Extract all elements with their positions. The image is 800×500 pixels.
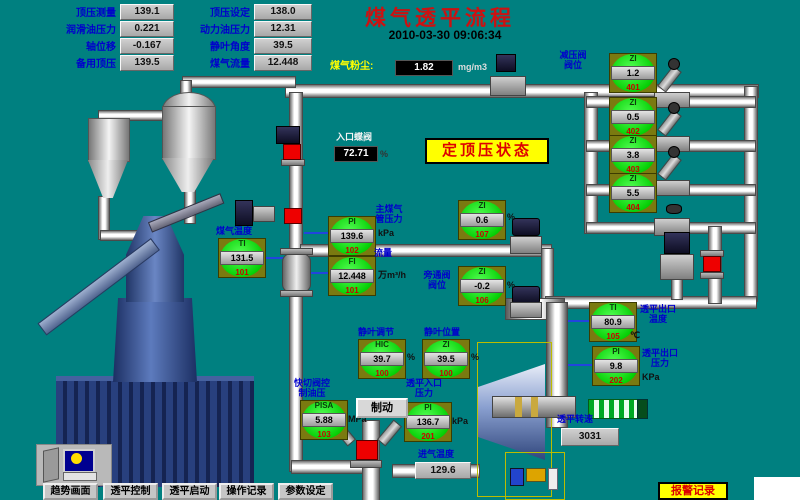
gauge-tag: 202 [593, 376, 639, 385]
nav-button-trend[interactable]: 趋势画面 [43, 483, 98, 500]
gauge-zi-401[interactable]: ZI 1.2 401 [609, 53, 657, 93]
panel-value: 39.5 [254, 38, 312, 54]
flange [280, 248, 313, 255]
gauge-type: TI [219, 239, 265, 248]
valve-body [510, 302, 542, 318]
turbine-inlet-label: 透平入口压力 [404, 378, 444, 398]
panel-label: 顶压设定 [188, 4, 254, 19]
panel-value: 139.5 [120, 55, 174, 71]
gauge-value: 80.9 [591, 315, 635, 329]
cyclone-cone [88, 160, 128, 198]
gauge-zi-403[interactable]: ZI 3.8 403 [609, 135, 657, 175]
valve-actuator [657, 109, 682, 136]
valve-actuator [512, 218, 540, 236]
nav-button-param[interactable]: 参数设定 [278, 483, 333, 500]
outlet-temp-label: 透平出口温度 [638, 304, 678, 324]
gauge-unit: % [507, 280, 515, 290]
panel-value: 12.448 [254, 55, 312, 71]
gauge-zi-404[interactable]: ZI 5.5 404 [609, 173, 657, 213]
gauge-value: 0.6 [460, 213, 504, 227]
gauge-type: PI [405, 403, 451, 412]
gauge-tag: 100 [359, 369, 405, 378]
panel-value: -0.167 [120, 38, 174, 54]
valve-actuator [657, 153, 682, 180]
gauge-type: FI [329, 257, 375, 266]
intake-temp-value: 129.6 [415, 462, 471, 479]
valve-body [490, 76, 526, 96]
bypass-valve-label: 旁通阀阀位 [420, 270, 454, 290]
gauge-value: 39.5 [424, 352, 468, 366]
gauge-fi-101[interactable]: FI 12.448 101 [328, 256, 376, 296]
exit-icon[interactable] [36, 444, 112, 486]
gauge-value: 0.5 [611, 110, 655, 124]
gauge-unit: 万m³/h [378, 268, 406, 281]
valve-branch [377, 420, 402, 447]
panel-label: 煤气流量 [188, 55, 254, 70]
gauge-tag: 106 [459, 296, 505, 305]
signal-line [568, 320, 590, 322]
dust-catcher-cone [162, 158, 214, 192]
reduce-valve-group-label: 减压阀阀位 [556, 50, 590, 70]
gauge-tag: 102 [329, 246, 375, 255]
valve-actuator [664, 232, 690, 254]
gauge-pi-202[interactable]: PI 9.8 202 [592, 346, 640, 386]
panel-value: 12.31 [254, 21, 312, 37]
inlet-valve-actuator [276, 126, 300, 144]
turbine-speed-value: 3031 [561, 428, 619, 446]
gauge-tag: 103 [301, 430, 347, 439]
gauge-unit: % [407, 352, 415, 362]
door-icon [43, 447, 59, 482]
brake-button[interactable]: 制动 [356, 398, 408, 418]
pipe [671, 278, 683, 300]
generator-endcap [637, 399, 648, 419]
quick-shut-valve-body [356, 440, 378, 460]
main-gas-pressure-label: 主煤气管压力 [372, 204, 406, 224]
outlet-press-label: 透平出口压力 [640, 348, 680, 368]
inlet-valve-body [283, 144, 301, 160]
gauge-value: 5.88 [302, 413, 346, 427]
shaft-ring [531, 397, 538, 417]
gauge-value: -0.2 [460, 279, 504, 293]
gauge-tag: 101 [329, 286, 375, 295]
expansion-joint [282, 252, 311, 294]
panel-label: 静叶角度 [188, 38, 254, 53]
dust-meter-value: 1.82 [395, 60, 453, 76]
valve-body [510, 236, 542, 254]
alarm-record-button[interactable]: 报警记录 [658, 482, 728, 500]
gauge-ti-101[interactable]: TI 131.5 101 [218, 238, 266, 278]
aux-device-blue [510, 468, 524, 486]
gauge-type: ZI [610, 54, 656, 63]
panel-value: 138.0 [254, 4, 312, 20]
gauge-type: HIC [359, 340, 405, 349]
panel-label: 备用顶压 [30, 55, 120, 70]
nav-button-turbine-start[interactable]: 透平启动 [162, 483, 217, 500]
gauge-zi-402[interactable]: ZI 0.5 402 [609, 97, 657, 137]
gauge-tag: 101 [219, 268, 265, 277]
keyboard-icon [63, 472, 97, 481]
valve-body [660, 254, 694, 280]
gauge-type: ZI [423, 340, 469, 349]
gauge-type: PISA [301, 401, 347, 410]
valve-body [703, 256, 721, 272]
flange [700, 272, 724, 279]
dust-meter-unit: mg/m3 [458, 62, 487, 72]
monitor-glyph [71, 453, 82, 464]
gauge-type: PI [329, 217, 375, 226]
panel-label: 轴位移 [30, 38, 120, 53]
valve-body [654, 180, 690, 196]
gauge-unit: % [471, 352, 479, 362]
gauge-unit: kPa [378, 228, 394, 238]
gauge-tag: 401 [610, 83, 656, 92]
status-banner: 定顶压状态 [425, 138, 549, 164]
pipe [584, 92, 598, 234]
pipe [182, 76, 296, 88]
gauge-pisa-103[interactable]: PISA 5.88 103 [300, 400, 348, 440]
screen-corner [754, 477, 800, 500]
aux-device-yellow [526, 468, 546, 482]
nav-button-op-record[interactable]: 操作记录 [219, 483, 274, 500]
gauge-type: ZI [459, 201, 505, 210]
gauge-tag: 404 [610, 203, 656, 212]
blast-furnace-body [113, 298, 197, 382]
panel-label: 动力油压力 [188, 21, 254, 36]
turbine-speed-label: 透平转速 [557, 414, 593, 424]
panel-value: 0.221 [120, 21, 174, 37]
valve-handwheel [666, 204, 682, 214]
flange [280, 290, 313, 297]
gauge-unit: ℃ [630, 330, 640, 341]
signal-line [304, 232, 328, 234]
instrument-device [235, 200, 253, 226]
valve-knob [668, 102, 680, 114]
panel-label: 顶压测量 [30, 4, 120, 19]
cyclone-body [88, 118, 130, 162]
gas-temp-label: 煤气温度 [216, 226, 252, 236]
gauge-type: PI [593, 347, 639, 356]
gauge-zi-100[interactable]: ZI 39.5 100 [422, 339, 470, 379]
flange [350, 460, 382, 468]
quick-valve-label: 快切阀控制油压 [292, 378, 332, 398]
gauge-tag: 107 [459, 230, 505, 239]
gauge-unit: KPa [642, 372, 660, 382]
signal-line [568, 364, 593, 366]
gauge-pi-102[interactable]: PI 139.6 102 [328, 216, 376, 256]
vane-adjust-label: 静叶调节 [358, 327, 394, 337]
nav-button-turbine-control[interactable]: 透平控制 [103, 483, 158, 500]
gauge-value: 131.5 [220, 251, 264, 265]
gauge-tag: 201 [405, 432, 451, 441]
gauge-value: 39.7 [360, 352, 404, 366]
gauge-value: 9.8 [594, 359, 638, 373]
inlet-valve-unit: % [380, 149, 388, 159]
gauge-value: 1.2 [611, 66, 655, 80]
gauge-type: ZI [610, 136, 656, 145]
inlet-valve-label: 入口蝶阀 [336, 132, 372, 142]
panel-label: 润滑油压力 [30, 21, 120, 36]
valve-knob [668, 146, 680, 158]
valve-actuator [496, 54, 516, 72]
shaft-ring [515, 397, 522, 417]
gauge-value: 136.7 [406, 415, 450, 429]
valve-knob [668, 58, 680, 70]
hmi-screen: 煤气透平流程 2010-03-30 09:06:34 顶压测量 139.1 顶压… [0, 0, 800, 500]
gauge-type: ZI [459, 267, 505, 276]
dust-catcher-body [162, 106, 216, 160]
flow-label: 流量 [374, 248, 392, 258]
gauge-value: 12.448 [330, 269, 374, 283]
gauge-value: 5.5 [611, 186, 655, 200]
vane-position-label: 静叶位置 [424, 327, 460, 337]
panel-value: 139.1 [120, 4, 174, 20]
valve-body [284, 208, 302, 224]
top-data-panel: 顶压测量 139.1 顶压设定 138.0 润滑油压力 0.221 动力油压力 … [30, 3, 312, 71]
gauge-unit: kPa [452, 416, 468, 426]
generator [588, 399, 640, 419]
gauge-hic-100[interactable]: HIC 39.7 100 [358, 339, 406, 379]
intake-temp-label: 进气温度 [418, 449, 454, 459]
gauge-type: ZI [610, 98, 656, 107]
gauge-value: 139.6 [330, 229, 374, 243]
gauge-zi-106[interactable]: ZI -0.2 106 [458, 266, 506, 306]
gauge-tag: 100 [423, 369, 469, 378]
gauge-zi-107[interactable]: ZI 0.6 107 [458, 200, 506, 240]
gauge-unit: % [507, 212, 515, 222]
aux-device-white [548, 468, 558, 490]
inlet-valve-value: 72.71 [334, 146, 378, 162]
gauge-type: ZI [610, 174, 656, 183]
gauge-value: 3.8 [611, 148, 655, 162]
instrument-device [253, 206, 275, 222]
gauge-type: TI [590, 303, 636, 312]
flange [281, 159, 305, 166]
timestamp: 2010-03-30 09:06:34 [350, 28, 540, 42]
gauge-pi-201[interactable]: PI 136.7 201 [404, 402, 452, 442]
dust-meter-label: 煤气粉尘: [330, 62, 373, 72]
